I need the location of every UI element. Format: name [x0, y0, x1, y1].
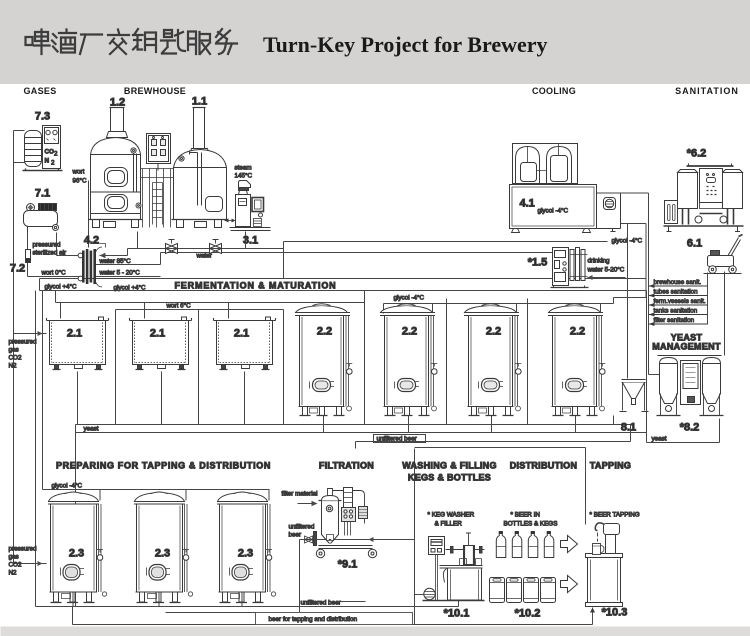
svg-text:7.2: 7.2 — [10, 263, 25, 275]
svg-text:N: N — [45, 158, 50, 165]
svg-text:2.3: 2.3 — [238, 548, 253, 560]
svg-text:GASES: GASES — [23, 86, 56, 96]
svg-text:*10.1: *10.1 — [444, 608, 470, 620]
svg-text:BREWHOUSE: BREWHOUSE — [124, 86, 186, 96]
svg-text:CO2: CO2 — [9, 355, 22, 362]
svg-text:unfiltered beer: unfiltered beer — [377, 436, 417, 443]
svg-text:2.3: 2.3 — [69, 548, 84, 560]
svg-text:KEGS & BOTTLES: KEGS & BOTTLES — [408, 473, 491, 483]
svg-text:WASHING & FILLING: WASHING & FILLING — [402, 461, 497, 471]
svg-text:*6.2: *6.2 — [687, 148, 707, 160]
svg-text:drinking: drinking — [588, 258, 611, 265]
svg-text:TAPPING: TAPPING — [590, 461, 631, 471]
svg-text:96°C: 96°C — [73, 177, 88, 185]
svg-text:SANITATION: SANITATION — [675, 86, 739, 96]
svg-text:FERMENTATION & MATURATION: FERMENTATION & MATURATION — [174, 281, 336, 291]
svg-text:yeast: yeast — [84, 426, 99, 433]
svg-text:CO2: CO2 — [9, 562, 22, 569]
svg-text:4.2: 4.2 — [84, 235, 99, 247]
svg-text:145°C: 145°C — [235, 172, 253, 180]
svg-text:gas: gas — [9, 347, 19, 354]
svg-text:beer for tapping and distribut: beer for tapping and distribution — [269, 616, 358, 623]
svg-text:1.1: 1.1 — [192, 96, 207, 108]
svg-text:wort: wort — [72, 169, 85, 176]
svg-text:2.1: 2.1 — [150, 328, 165, 340]
svg-text:glycol -4°C: glycol -4°C — [538, 207, 569, 215]
svg-text:7.1: 7.1 — [35, 188, 50, 200]
svg-text:wort 6°C: wort 6°C — [166, 302, 192, 310]
svg-text:water 5 - 20°C: water 5 - 20°C — [99, 269, 141, 277]
svg-text:* BEER TAPPING: * BEER TAPPING — [590, 512, 640, 519]
svg-text:4.1: 4.1 — [520, 198, 535, 210]
svg-text:beer: beer — [289, 532, 302, 539]
svg-text:Turn-Key Project for Brewery: Turn-Key Project for Brewery — [263, 32, 548, 57]
svg-text:2: 2 — [54, 151, 58, 158]
svg-text:gas: gas — [9, 554, 19, 561]
svg-text:water 85°C: water 85°C — [99, 257, 132, 265]
svg-text:tanks sanitation: tanks sanitation — [654, 308, 698, 315]
svg-text:N2: N2 — [9, 363, 18, 370]
svg-text:6.1: 6.1 — [687, 238, 702, 250]
svg-text:glycol -4°C: glycol -4°C — [52, 482, 83, 490]
svg-text:*8.2: *8.2 — [680, 422, 700, 434]
svg-text:2.2: 2.2 — [317, 326, 332, 338]
svg-text:FILTRATION: FILTRATION — [319, 461, 374, 471]
svg-text:* BEER IN: * BEER IN — [511, 512, 541, 519]
svg-text:*9.1: *9.1 — [338, 559, 358, 571]
svg-text:*1.5: *1.5 — [528, 257, 548, 269]
svg-text:COOLING: COOLING — [532, 86, 576, 96]
svg-text:glycol -4°C: glycol -4°C — [612, 237, 643, 245]
svg-text:filter sanitation: filter sanitation — [654, 317, 695, 324]
svg-text:2: 2 — [51, 160, 55, 167]
svg-text:CO: CO — [45, 149, 55, 156]
svg-text:tubes sanitation: tubes sanitation — [654, 289, 699, 296]
svg-text:*10.2: *10.2 — [515, 608, 541, 620]
svg-text:steam: steam — [235, 165, 252, 172]
svg-text:DISTRIBUTION: DISTRIBUTION — [510, 461, 578, 471]
svg-text:7.3: 7.3 — [35, 111, 50, 123]
svg-text:wort 0°C: wort 0°C — [41, 269, 67, 277]
svg-text:glycol -4°C: glycol -4°C — [394, 294, 425, 302]
svg-text:pressured: pressured — [9, 546, 37, 553]
svg-text:PREPARING FOR TAPPING & DISTRI: PREPARING FOR TAPPING & DISTRIBUTION — [56, 461, 271, 471]
svg-text:2.1: 2.1 — [67, 328, 82, 340]
svg-text:3.1: 3.1 — [243, 235, 258, 247]
svg-text:2.3: 2.3 — [155, 548, 170, 560]
svg-text:glycol +4°C: glycol +4°C — [45, 283, 78, 291]
svg-text:water 5-20°C: water 5-20°C — [587, 266, 625, 274]
svg-text:2.1: 2.1 — [234, 328, 249, 340]
svg-text:N2: N2 — [9, 570, 18, 577]
svg-text:1.2: 1.2 — [110, 97, 125, 109]
svg-text:MANAGEMENT: MANAGEMENT — [652, 342, 721, 352]
svg-text:filter material: filter material — [282, 491, 318, 498]
svg-text:unfiltered beer: unfiltered beer — [301, 600, 341, 607]
svg-text:2.2: 2.2 — [570, 326, 585, 338]
svg-text:ferm.vessels sanit.: ferm.vessels sanit. — [654, 298, 706, 305]
svg-text:pressured: pressured — [33, 242, 61, 249]
svg-text:unfiltered: unfiltered — [289, 524, 315, 531]
svg-text:yeast: yeast — [652, 436, 667, 443]
svg-text:2.2: 2.2 — [486, 326, 501, 338]
svg-text:8.1: 8.1 — [621, 422, 636, 434]
svg-text:*10.3: *10.3 — [602, 607, 628, 619]
svg-text:& FILLER: & FILLER — [435, 521, 463, 528]
svg-text:glycol +4°C: glycol +4°C — [114, 284, 147, 292]
svg-text:* KEG WASHER: * KEG WASHER — [428, 512, 475, 519]
svg-text:2.2: 2.2 — [402, 326, 417, 338]
svg-text:water: water — [196, 253, 212, 260]
svg-text:sterilized air: sterilized air — [33, 250, 67, 257]
svg-text:BOTTLES & KEGS: BOTTLES & KEGS — [504, 521, 558, 528]
svg-text:pressured: pressured — [9, 339, 37, 346]
svg-text:brewhouse sanit.: brewhouse sanit. — [654, 279, 702, 286]
